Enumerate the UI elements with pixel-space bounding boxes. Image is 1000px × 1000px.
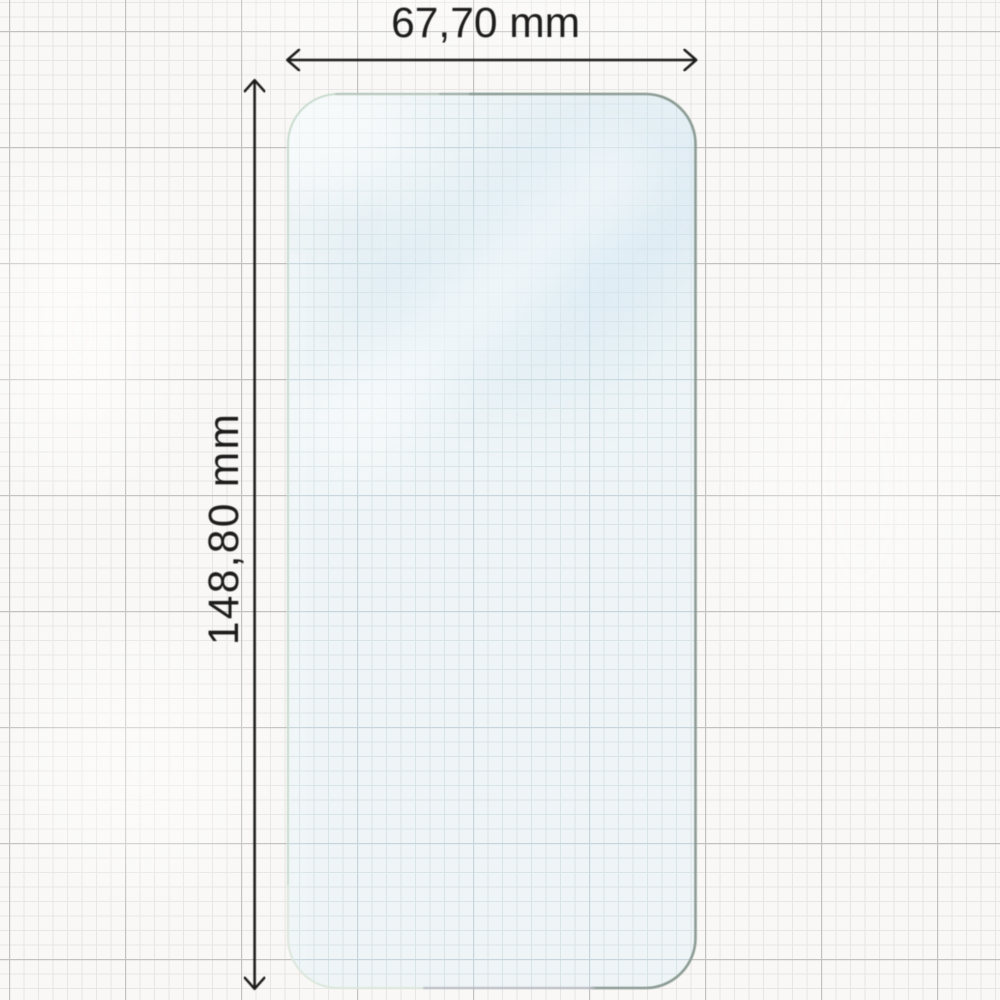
svg-text:67,70 mm: 67,70 mm — [391, 0, 580, 47]
svg-text:148,80 mm: 148,80 mm — [201, 412, 248, 645]
